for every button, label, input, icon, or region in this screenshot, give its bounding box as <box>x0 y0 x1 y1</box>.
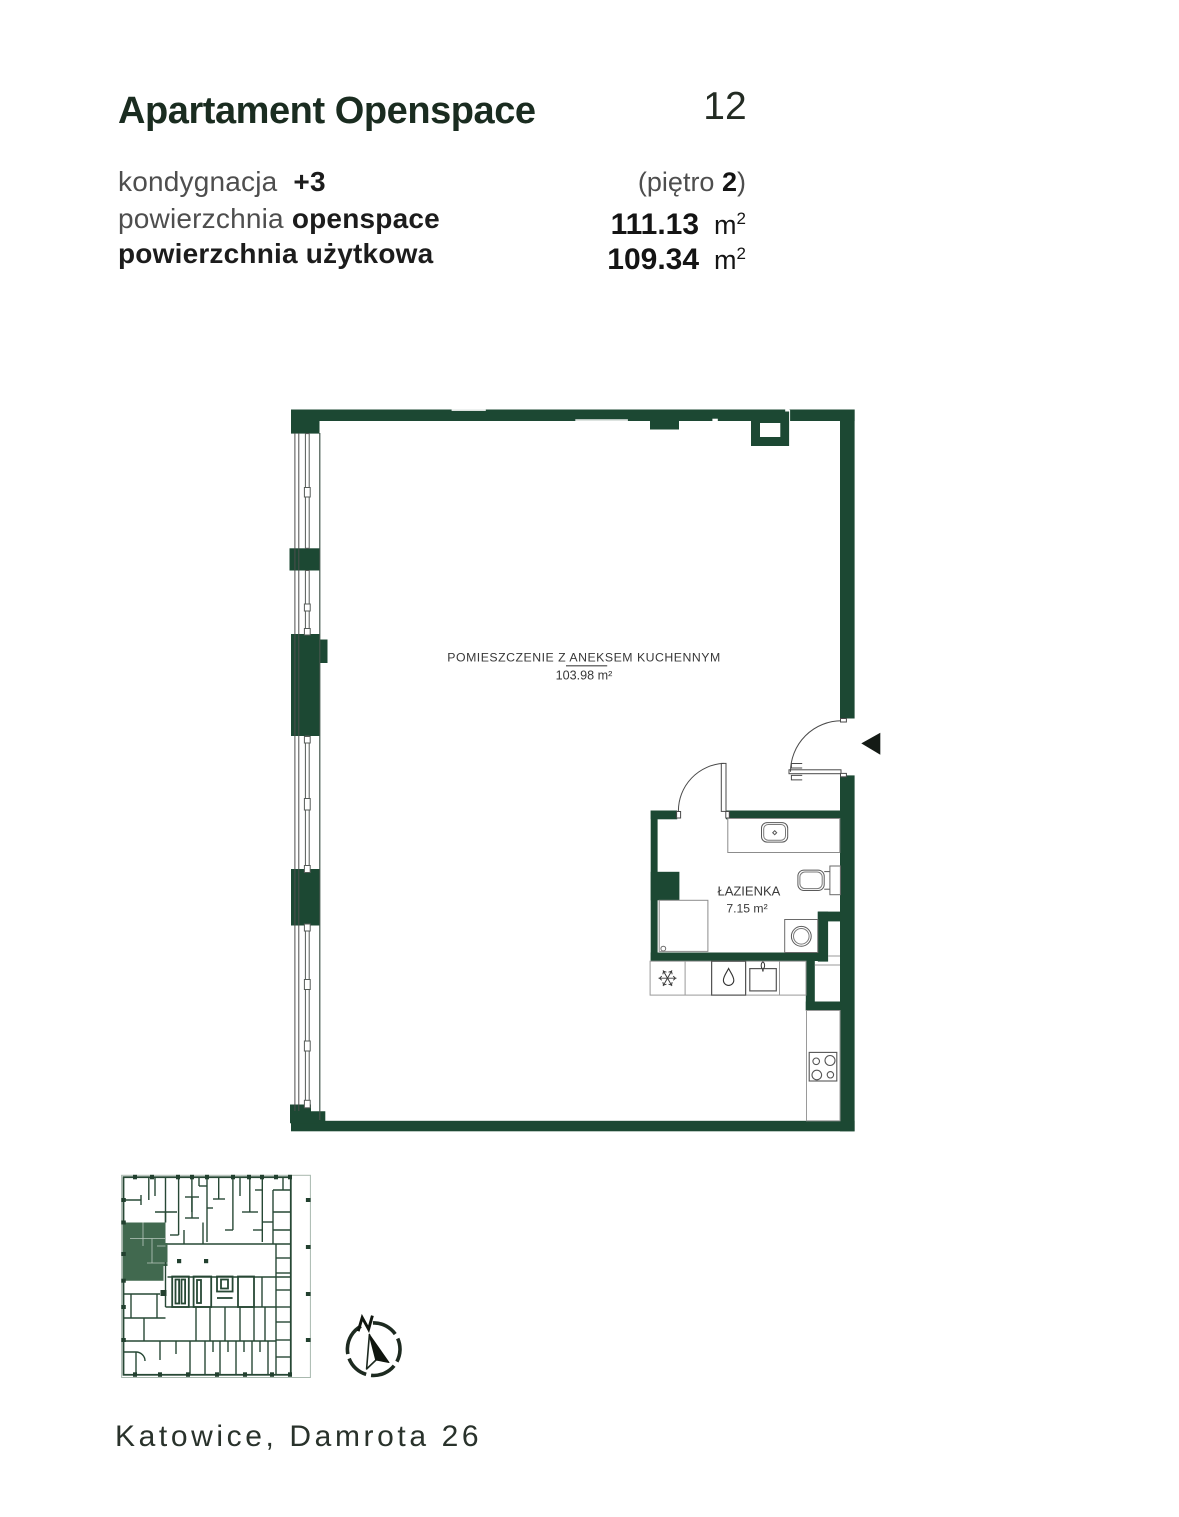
svg-text:ŁAZIENKA: ŁAZIENKA <box>717 884 780 899</box>
svg-text:POMIESZCZENIE Z ANEKSEM KUCHEN: POMIESZCZENIE Z ANEKSEM KUCHENNYM <box>447 651 720 665</box>
svg-text:7.15 m²: 7.15 m² <box>726 902 767 916</box>
svg-text:103.98 m²: 103.98 m² <box>556 669 613 683</box>
